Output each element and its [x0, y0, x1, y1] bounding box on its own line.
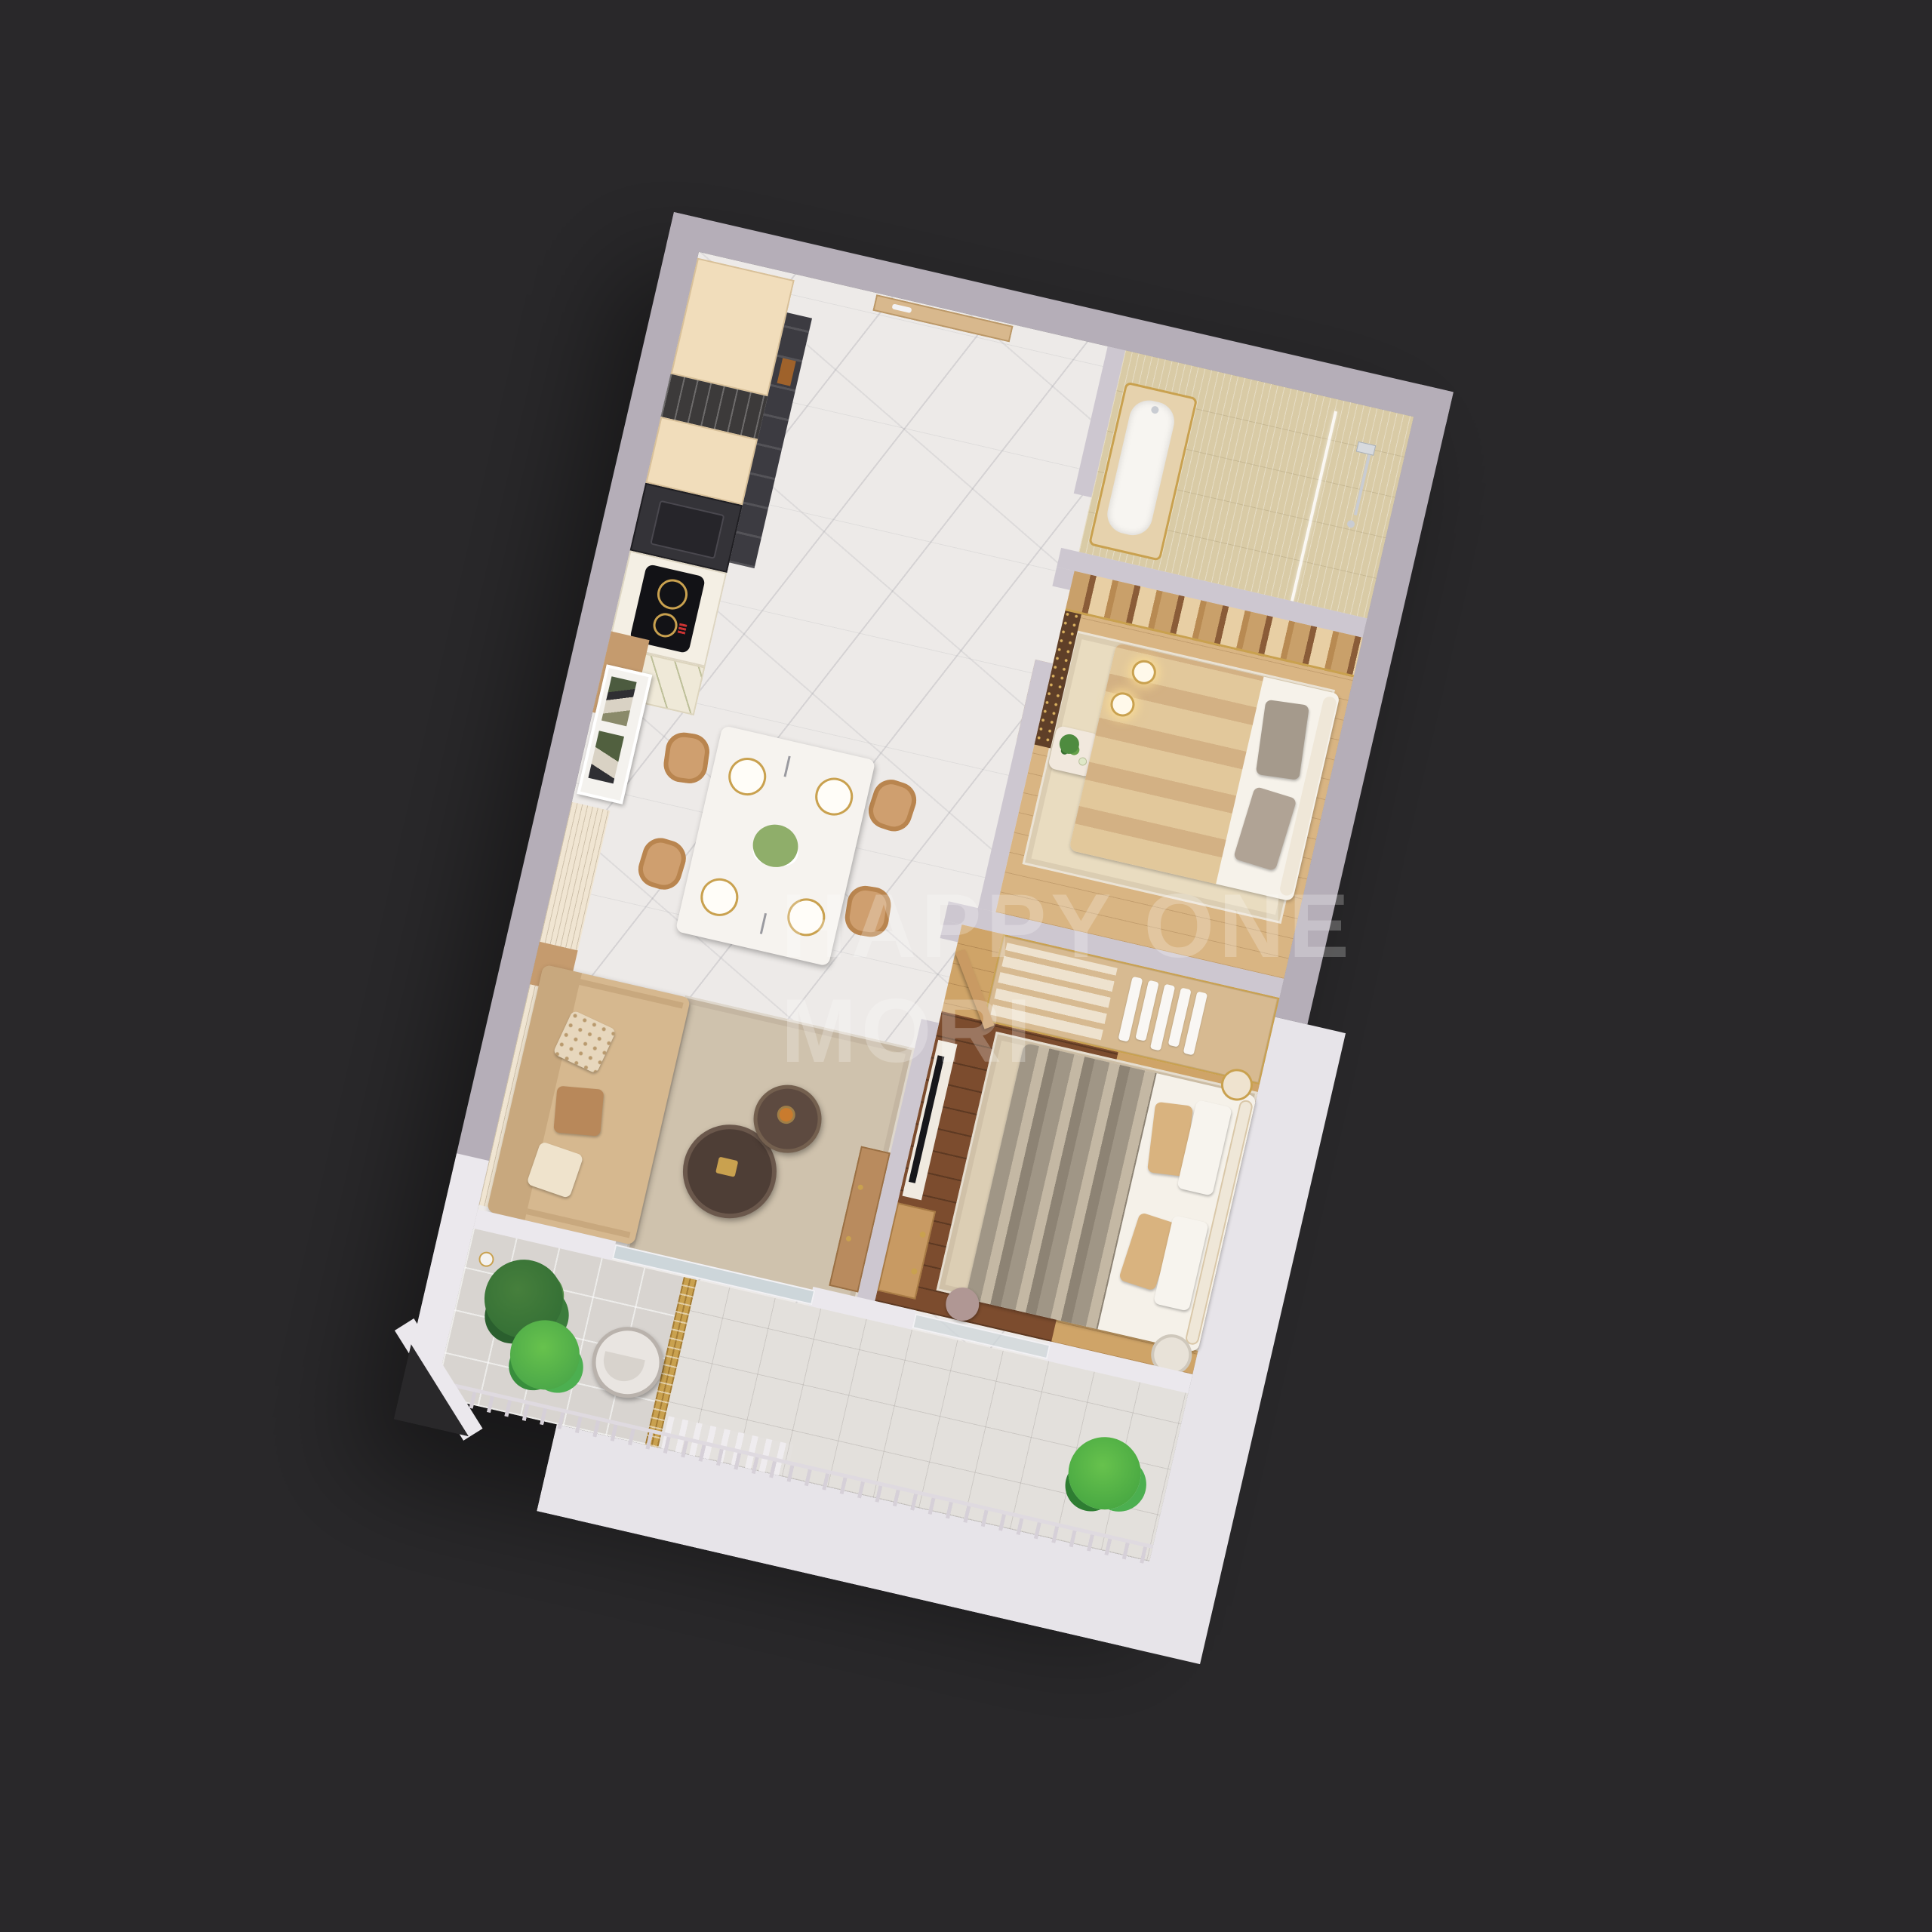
- bedroom1-pillow-gray-1: [1256, 700, 1309, 780]
- cutlery: [760, 913, 767, 934]
- wall-art-abstract: [601, 676, 637, 726]
- throw-pillow-brown: [553, 1086, 604, 1137]
- gold-handle: [845, 1235, 851, 1241]
- lounge-chair-seat: [600, 1351, 645, 1385]
- decor-vase-orange: [778, 1106, 795, 1123]
- cooktop-burner: [651, 611, 679, 639]
- potted-plant-icon: [1057, 732, 1081, 755]
- glass-cup: [1078, 756, 1088, 766]
- cooktop-burner: [654, 577, 691, 613]
- flower-centerpiece: [749, 820, 802, 872]
- render-canvas: HAPPY ONEMORI: [0, 0, 1932, 1932]
- gold-handle: [911, 1268, 918, 1275]
- watermark-line2: MORI: [781, 980, 1035, 1081]
- gold-handle: [919, 1231, 927, 1238]
- place-setting: [724, 754, 770, 799]
- door-handle: [892, 303, 912, 313]
- cutlery: [783, 756, 790, 777]
- oven-window: [777, 358, 796, 386]
- watermark: HAPPY ONEMORI: [781, 874, 1354, 1084]
- gold-decor-tray: [715, 1157, 738, 1177]
- place-setting: [697, 875, 742, 920]
- place-setting: [811, 774, 857, 820]
- watermark-line1: HAPPY ONE: [781, 875, 1354, 977]
- cooktop-controls: [678, 623, 688, 635]
- wall-art-abstract: [588, 731, 624, 783]
- kitchen-sink: [650, 500, 724, 559]
- gold-handle: [857, 1184, 863, 1190]
